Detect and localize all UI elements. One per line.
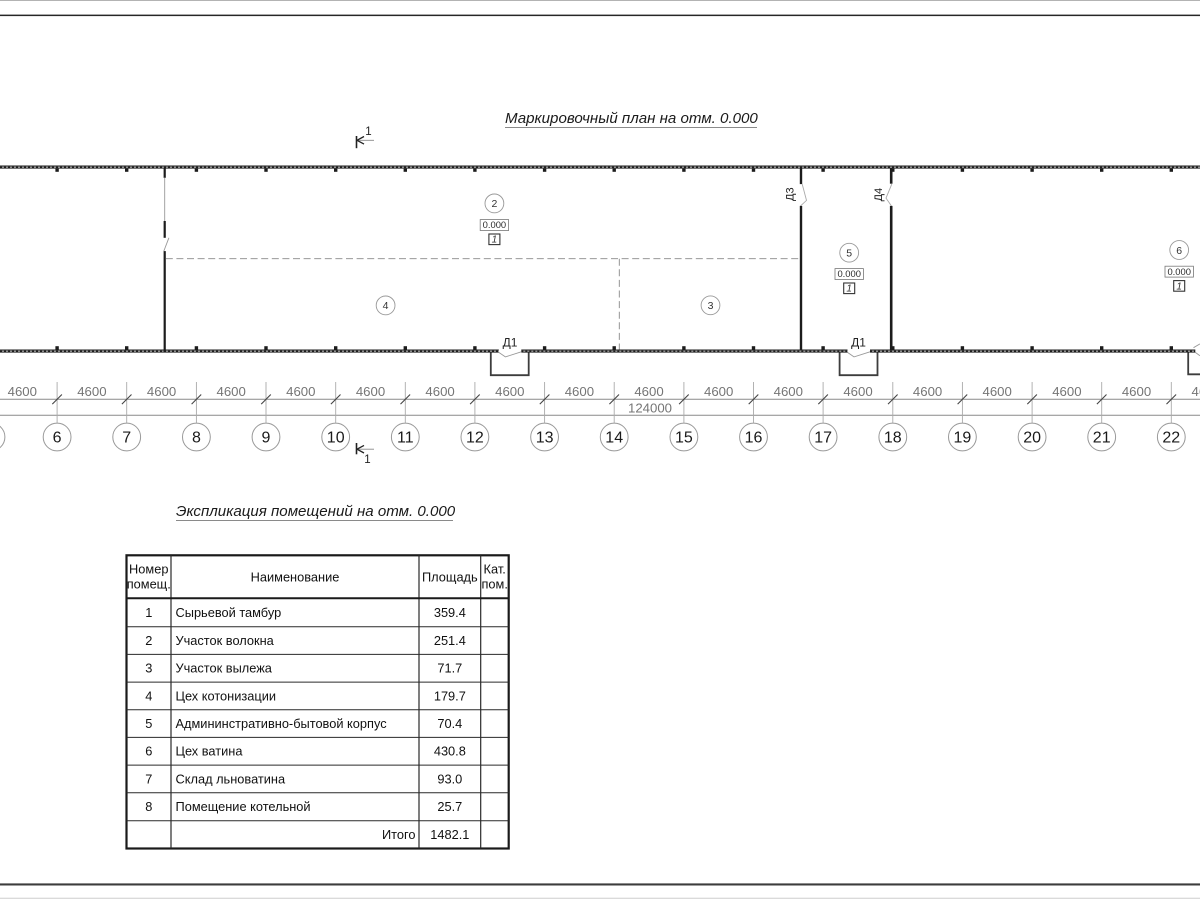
svg-text:25.7: 25.7: [437, 799, 462, 814]
svg-text:430.8: 430.8: [434, 744, 466, 759]
svg-text:0.000: 0.000: [1167, 266, 1190, 277]
svg-text:1: 1: [145, 605, 152, 620]
svg-text:21: 21: [1093, 430, 1111, 447]
svg-text:Д4: Д4: [873, 188, 885, 202]
svg-text:4600: 4600: [843, 384, 872, 399]
svg-text:1: 1: [1176, 281, 1182, 292]
svg-text:4600: 4600: [983, 384, 1012, 399]
svg-text:1482.1: 1482.1: [430, 827, 469, 842]
svg-text:18: 18: [884, 430, 902, 447]
svg-text:Сырьевой тамбур: Сырьевой тамбур: [176, 605, 282, 620]
svg-text:4600: 4600: [565, 384, 594, 399]
svg-text:пом.: пом.: [481, 577, 507, 592]
svg-text:124000: 124000: [628, 401, 672, 416]
svg-text:Цех ватина: Цех ватина: [176, 744, 244, 759]
svg-text:8: 8: [145, 799, 152, 814]
svg-text:22: 22: [1162, 430, 1180, 447]
svg-text:Участок волокна: Участок волокна: [176, 633, 275, 648]
svg-text:12: 12: [466, 430, 484, 447]
svg-text:Итого: Итого: [382, 827, 416, 842]
svg-text:5: 5: [145, 716, 152, 731]
svg-text:0.000: 0.000: [483, 219, 506, 230]
svg-text:6: 6: [1176, 245, 1182, 257]
svg-text:0.000: 0.000: [837, 268, 860, 279]
svg-text:4600: 4600: [1192, 384, 1200, 399]
svg-text:4600: 4600: [1052, 384, 1081, 399]
svg-text:93.0: 93.0: [437, 771, 462, 786]
svg-text:Кат.: Кат.: [484, 562, 506, 577]
svg-text:4: 4: [383, 300, 389, 312]
svg-text:4600: 4600: [774, 384, 803, 399]
svg-text:17: 17: [814, 430, 832, 447]
svg-text:4600: 4600: [634, 384, 663, 399]
svg-text:2: 2: [145, 633, 152, 648]
svg-text:4: 4: [145, 688, 152, 703]
svg-text:9: 9: [262, 430, 271, 447]
svg-text:19: 19: [954, 430, 972, 447]
svg-text:Наименование: Наименование: [251, 570, 340, 585]
svg-text:14: 14: [605, 430, 623, 447]
svg-text:4600: 4600: [8, 384, 37, 399]
svg-text:4600: 4600: [1122, 384, 1151, 399]
svg-text:71.7: 71.7: [437, 661, 462, 676]
svg-text:179.7: 179.7: [434, 688, 466, 703]
svg-text:7: 7: [122, 430, 131, 447]
svg-text:7: 7: [145, 771, 152, 786]
svg-text:Д1: Д1: [851, 335, 866, 349]
svg-text:15: 15: [675, 430, 693, 447]
svg-text:4600: 4600: [286, 384, 315, 399]
svg-text:4600: 4600: [425, 384, 454, 399]
svg-text:4600: 4600: [913, 384, 942, 399]
svg-text:6: 6: [53, 430, 62, 447]
svg-text:4600: 4600: [356, 384, 385, 399]
svg-text:4600: 4600: [77, 384, 106, 399]
svg-text:251.4: 251.4: [434, 633, 466, 648]
svg-text:6: 6: [145, 744, 152, 759]
svg-text:3: 3: [145, 661, 152, 676]
svg-text:8: 8: [192, 430, 201, 447]
svg-text:2: 2: [491, 198, 497, 210]
svg-text:5: 5: [846, 248, 852, 260]
svg-text:11: 11: [397, 430, 414, 447]
svg-text:20: 20: [1023, 430, 1041, 447]
svg-text:10: 10: [327, 430, 345, 447]
svg-text:Цех котонизации: Цех котонизации: [176, 688, 277, 703]
svg-text:Площадь: Площадь: [422, 570, 478, 585]
svg-text:4600: 4600: [704, 384, 733, 399]
svg-text:4600: 4600: [147, 384, 176, 399]
svg-text:Д1: Д1: [503, 335, 518, 349]
svg-text:359.4: 359.4: [434, 605, 466, 620]
svg-text:Склад льноватина: Склад льноватина: [176, 771, 286, 786]
svg-text:Админинстративно-бытовой корпу: Админинстративно-бытовой корпус: [176, 716, 388, 731]
svg-text:1: 1: [365, 126, 371, 138]
svg-text:1: 1: [492, 235, 498, 246]
svg-text:13: 13: [536, 430, 554, 447]
svg-text:1: 1: [846, 284, 852, 295]
svg-text:Помещение котельной: Помещение котельной: [176, 799, 311, 814]
svg-text:Д3: Д3: [785, 187, 797, 201]
svg-text:16: 16: [745, 430, 763, 447]
svg-text:4600: 4600: [217, 384, 246, 399]
svg-text:70.4: 70.4: [437, 716, 462, 731]
svg-text:4600: 4600: [495, 384, 524, 399]
svg-text:Участок вылежа: Участок вылежа: [176, 661, 273, 676]
svg-text:1: 1: [364, 454, 370, 466]
svg-text:помещ.: помещ.: [127, 577, 171, 592]
svg-text:Номер: Номер: [129, 562, 168, 577]
svg-text:3: 3: [708, 300, 714, 312]
